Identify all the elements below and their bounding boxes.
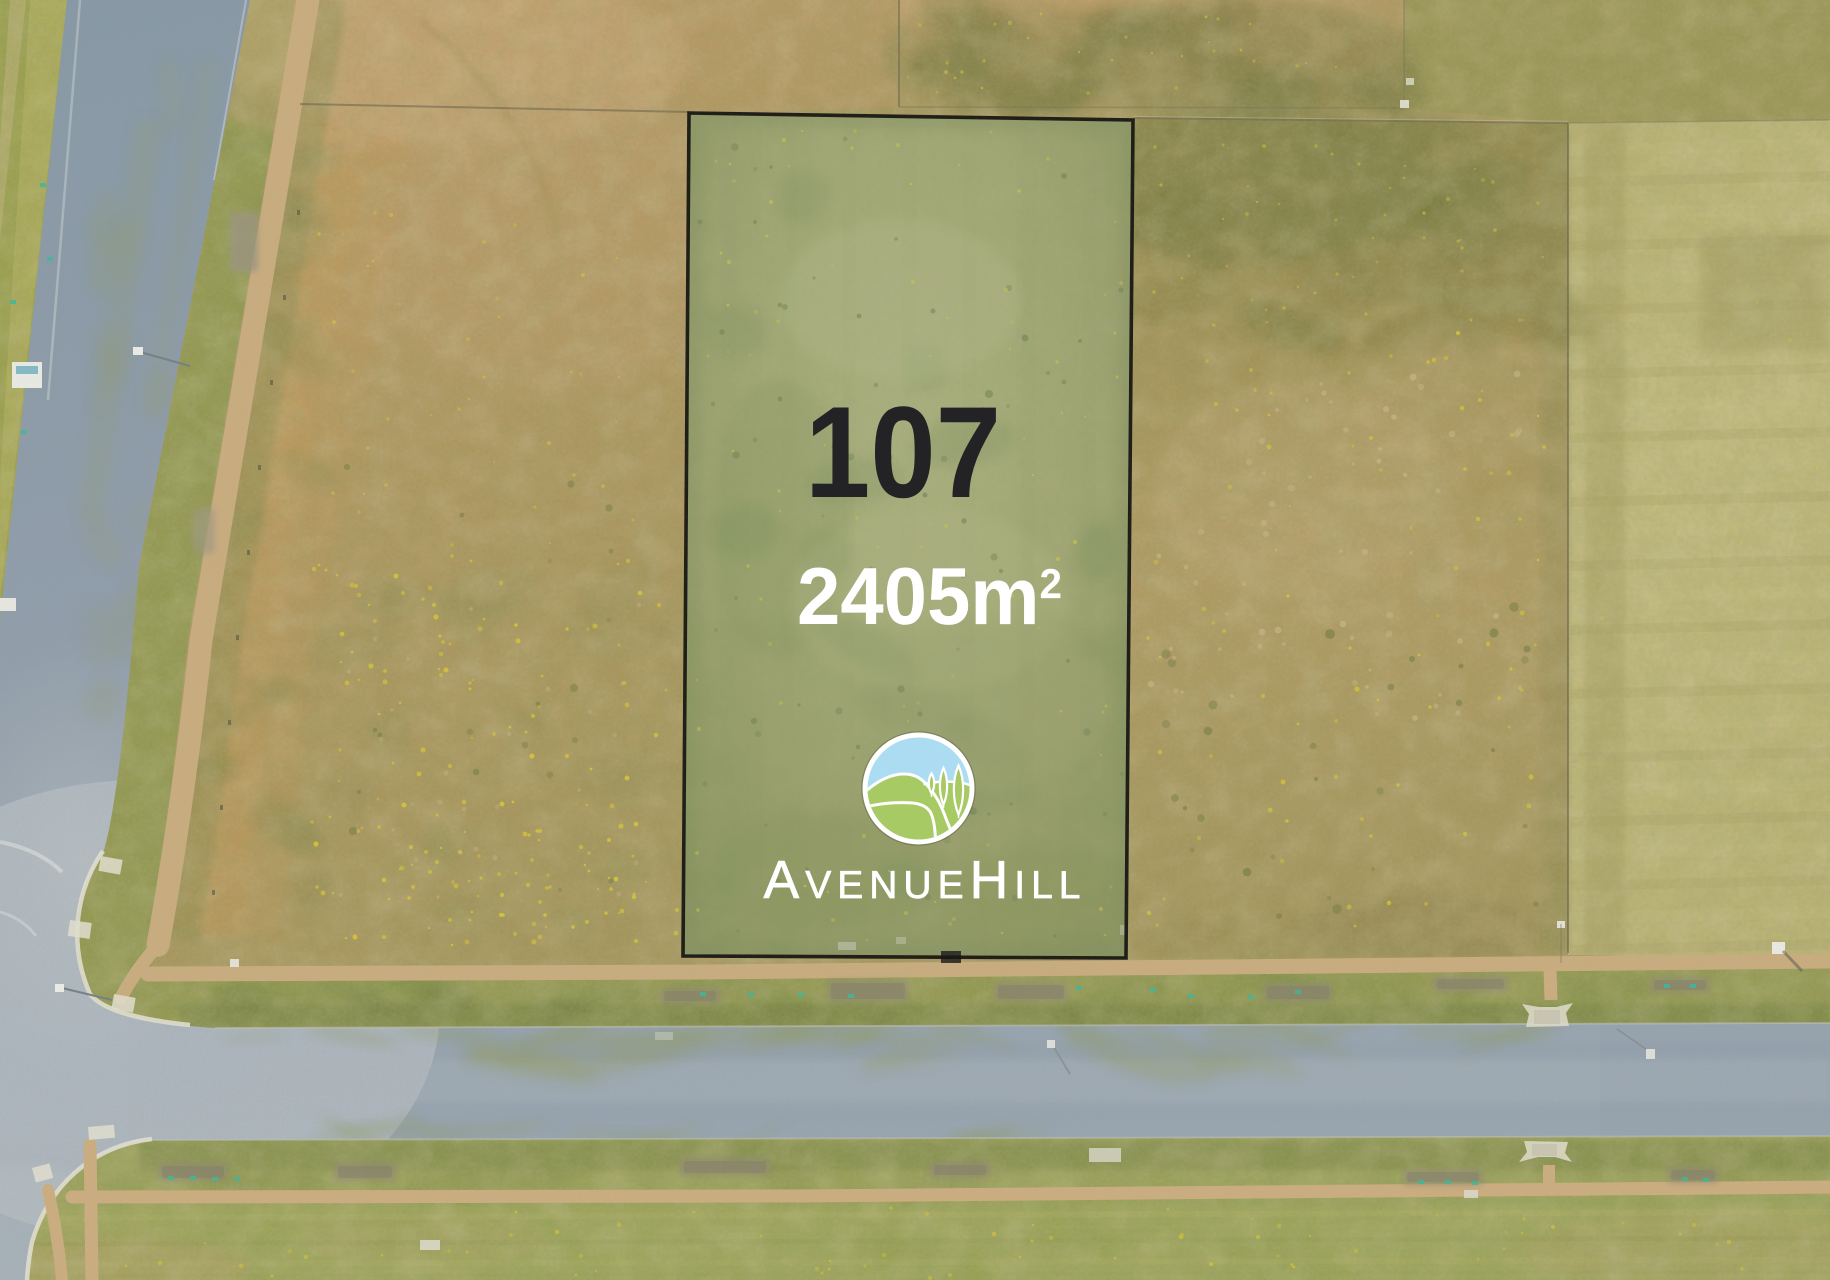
svg-text:2405m2: 2405m2 [797,552,1062,642]
svg-text:107: 107 [805,379,1001,525]
